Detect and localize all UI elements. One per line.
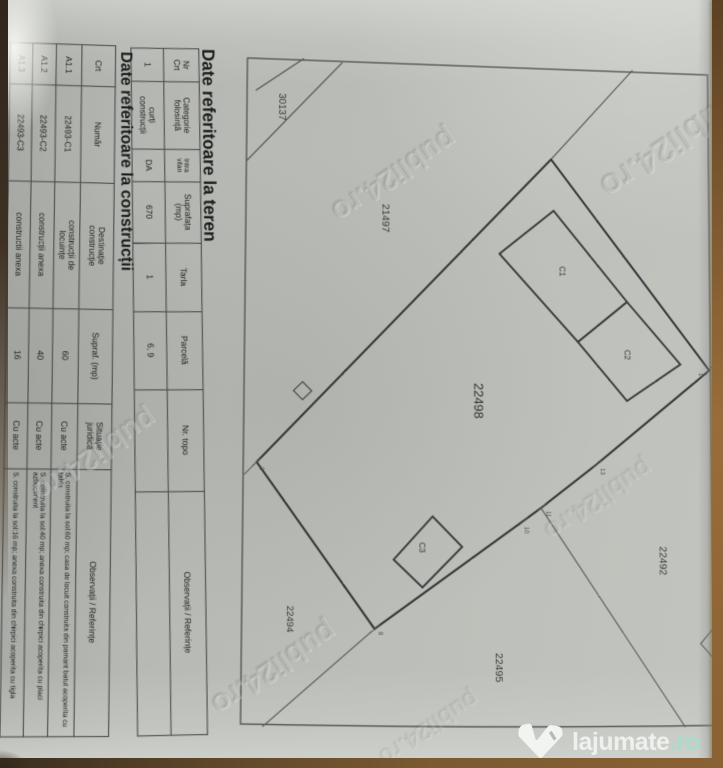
svg-text:30137: 30137: [276, 93, 288, 120]
svg-text:22495: 22495: [493, 653, 504, 683]
svg-text:10: 10: [523, 527, 529, 534]
svg-text:22498: 22498: [471, 383, 485, 419]
svg-text:21497: 21497: [379, 204, 390, 233]
svg-text:22494: 22494: [285, 606, 296, 633]
svg-text:C3: C3: [417, 542, 426, 552]
svg-text:22492: 22492: [657, 546, 668, 575]
svg-text:2: 2: [257, 467, 263, 470]
svg-text:C2: C2: [623, 350, 632, 360]
svg-text:C1: C1: [557, 266, 566, 276]
svg-text:8: 8: [376, 632, 382, 635]
svg-text:13: 13: [599, 468, 605, 475]
